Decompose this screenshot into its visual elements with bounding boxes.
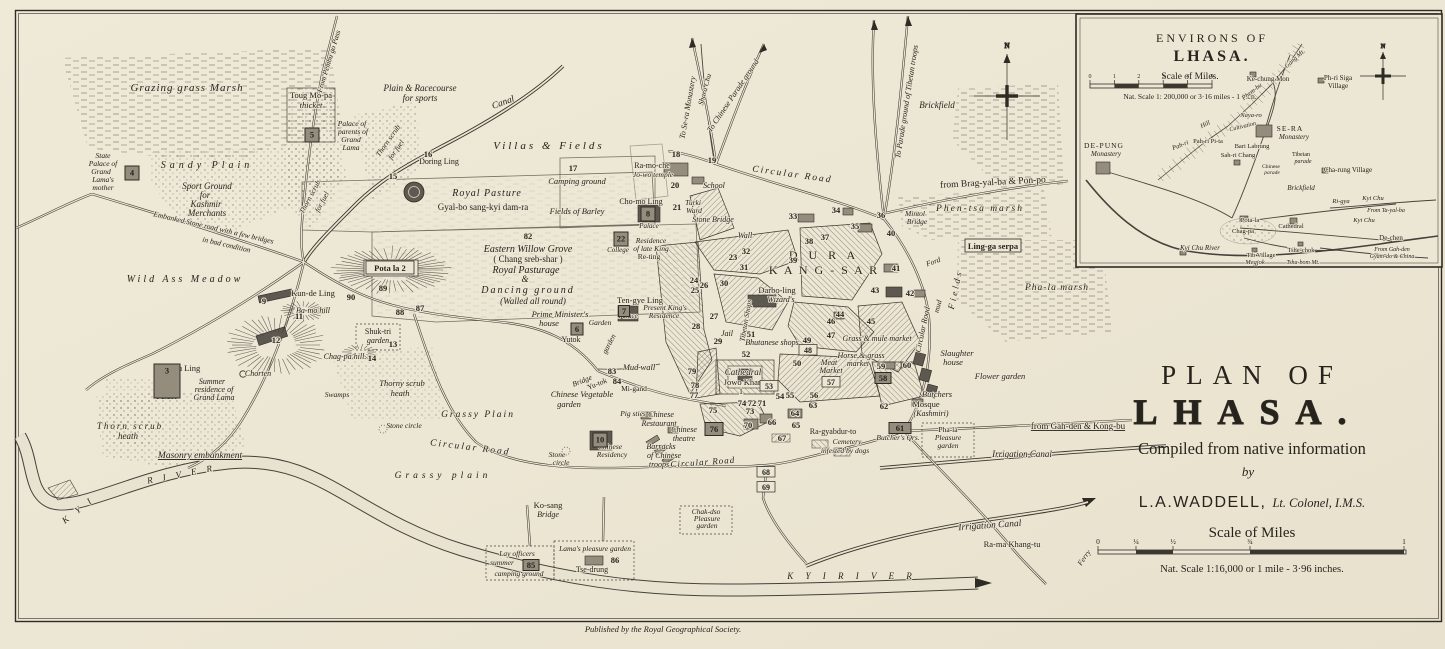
inset-label: Sah-ri Chang: [1221, 152, 1256, 159]
site-number: 27: [710, 311, 719, 321]
site-number: 55: [786, 390, 795, 400]
inset-label: Tib Village: [1246, 252, 1275, 259]
inset-title-2: LHASA.: [1173, 48, 1250, 65]
inset-label: From Ta-yal-ba: [1366, 208, 1405, 214]
map-label: Chag-pa hill.: [324, 352, 367, 361]
map-label: Wizard's: [767, 295, 794, 304]
map-label: Villas & Fields: [493, 140, 604, 152]
marker-number: 5: [310, 130, 314, 140]
site-number: 13: [389, 339, 398, 349]
map-label: Grass & mule market: [842, 334, 912, 343]
map-title-line2: LHASA.: [1133, 392, 1362, 432]
map-label: Chinese: [671, 425, 697, 434]
inset-label: From Gah-den: [1373, 247, 1410, 253]
map-label: Phen-tsa marsh: [935, 204, 1024, 214]
map-label: troops: [649, 460, 669, 469]
scale-tick-label: ½: [1170, 537, 1176, 546]
scale-tick-label: 3: [1162, 74, 1165, 80]
site-number: 14: [368, 353, 377, 363]
site-number: 15: [389, 171, 398, 181]
boxed-label: Ling-ga serpa: [968, 241, 1019, 251]
site-number: 17: [569, 163, 578, 173]
map-label: Thorny scrub: [379, 378, 425, 388]
map-label: Ra-gyabdur-to: [810, 427, 857, 436]
map-label: Flower garden: [974, 371, 1025, 381]
scale-tick-label: 5: [1211, 74, 1214, 80]
site-number: 32: [742, 246, 751, 256]
map-label: Brickfield: [919, 100, 955, 110]
map-label: house: [539, 318, 559, 328]
marker-number: 22: [617, 234, 626, 244]
site-number: 69: [762, 483, 770, 492]
marker-number: 3: [165, 366, 169, 376]
map-label: Ward: [686, 206, 702, 215]
map-label: garden: [697, 521, 718, 530]
site-number: 47: [827, 330, 836, 340]
site-number: 57: [827, 378, 835, 387]
site-number: 53: [765, 382, 773, 391]
inset-label: Village: [1328, 82, 1348, 90]
map-label: Swamps: [325, 390, 350, 399]
map-label: 1: [739, 387, 743, 396]
map-label: Jail: [721, 329, 734, 338]
scale-tick-label: ¼: [1133, 537, 1139, 546]
map-label: Chinese Vegetable: [551, 389, 614, 399]
se-ra-square: [1256, 125, 1272, 137]
north-label: N: [1004, 42, 1009, 50]
site-number: 74: [738, 398, 747, 408]
inset-label: Pota-la: [1241, 217, 1260, 224]
map-label: Chinese: [648, 410, 674, 419]
map-label: Cathedral: [725, 367, 762, 377]
map-label: Camping ground: [548, 176, 606, 186]
map-label: Royal Pasture: [451, 188, 522, 199]
site-number: 11: [295, 311, 303, 321]
site-number: 54: [776, 391, 785, 401]
scale-note: Nat. Scale 1:16,000 or 1 mile - 3·96 inc…: [1160, 564, 1343, 575]
map-label: School: [703, 181, 726, 190]
map-label: (Kashmiri): [913, 409, 948, 418]
map-label: Lama's pleasure garden: [558, 544, 631, 553]
site-number: 42: [906, 288, 915, 298]
map-label: Grazing grass Marsh: [130, 82, 243, 94]
site-number: 29: [714, 336, 723, 346]
site-number: 77: [690, 390, 699, 400]
map-label: from Gah-den & Kong-bu: [1031, 421, 1126, 431]
inset-label: parade: [1294, 159, 1312, 165]
site-number: 73: [746, 406, 755, 416]
site-number: 75: [709, 405, 718, 415]
site-number: 78: [691, 380, 700, 390]
inset-map: N ENVIRONS OF LHASA. Scale of Miles. 012…: [1076, 14, 1442, 267]
map-label: Butcher's Qrs.: [876, 433, 919, 442]
map-label: Cemetery: [833, 437, 862, 446]
map-label: infested by dogs: [821, 446, 869, 455]
map-label: heath: [391, 388, 410, 398]
map-label: Plain & Racecourse: [383, 83, 457, 93]
site-number: 49: [803, 335, 812, 345]
map-author: L.A.WADDELL,Lt. Colonel, I.M.S.: [1139, 494, 1365, 511]
map-label: K A N G - S A R: [769, 263, 879, 277]
inset-north-label: N: [1381, 44, 1386, 50]
map-label: Pha-la marsh: [1024, 283, 1089, 293]
map-label: Dancing ground: [480, 285, 574, 296]
map-label: garden: [367, 336, 389, 345]
map-label: ( Chang sreb-shar ): [493, 254, 562, 264]
site-number: 34: [832, 205, 841, 215]
site-number: 40: [887, 228, 896, 238]
inset-label: Ri-gya: [1331, 198, 1349, 205]
scale-tick-label: 0: [1096, 537, 1100, 546]
site-number: 45: [867, 316, 876, 326]
marker-number: 58: [879, 373, 888, 383]
site-number: 20: [671, 180, 680, 190]
map-label: Mi-gand: [621, 384, 647, 393]
inset-label: Bari Labrung: [1235, 143, 1271, 150]
inset-label: Monastery: [1090, 150, 1122, 158]
map-label: Grassy plain: [395, 471, 492, 481]
map-label: Merchants: [187, 208, 227, 218]
site-number: 30: [720, 278, 729, 288]
inset-scale-note: Nat. Scale 1: 200,000 or 3·16 miles - 1 …: [1123, 92, 1256, 101]
map-label: Butchers: [922, 389, 953, 399]
map-label: Lama: [341, 143, 359, 152]
site-number: 52: [742, 349, 751, 359]
site-number: 25: [691, 285, 700, 295]
marker-number: 10: [596, 435, 605, 445]
map-label: mother: [92, 183, 113, 192]
site-number: 60: [903, 360, 912, 370]
map-label: Stone circle: [386, 421, 422, 430]
inset-label: De-chen: [1379, 234, 1403, 242]
marker-number: 85: [527, 560, 536, 570]
map-label: Stone Bridge: [692, 215, 734, 224]
site-number: 67: [778, 433, 787, 443]
marker-number: 6: [575, 324, 579, 334]
scale-tick-label: 1: [1113, 74, 1116, 80]
site-number: 26: [700, 280, 709, 290]
inset-label: SE-RA: [1277, 124, 1304, 133]
inset-label: Pah-ri Pi-ta: [1193, 138, 1223, 145]
map-label: Masonry embankment: [157, 451, 243, 461]
site-number: 50: [793, 358, 802, 368]
scale-tick-label: 2: [1137, 74, 1140, 80]
inset-label: Kyi Chu: [1352, 217, 1375, 224]
inset-label: Kyi Chu: [1361, 195, 1384, 202]
map-label: Palace: [638, 222, 658, 230]
site-number: 82: [524, 231, 533, 241]
de-pung-square: [1096, 162, 1110, 174]
map-subtitle: Compiled from native information: [1138, 439, 1366, 458]
map-label: Bhutanese shops: [745, 338, 799, 347]
scale-tick-label: 4: [1186, 74, 1189, 80]
site-number: 46: [827, 316, 836, 326]
pond-15: [404, 182, 424, 202]
map-label: Market: [818, 366, 843, 375]
site-number: 19: [708, 155, 717, 165]
marker-number: 8: [646, 209, 650, 219]
map-label: Kun-de Ling: [291, 288, 335, 298]
site-number: 35: [851, 221, 860, 231]
publisher-imprint: Published by the Royal Geographical Soci…: [584, 624, 741, 634]
site-number: 16: [424, 149, 433, 159]
site-number: 71: [758, 398, 767, 408]
site-number: 86: [611, 555, 620, 565]
map-label: Jo-wo temple: [633, 170, 674, 179]
map-label: (Walled all round): [500, 296, 566, 306]
site-number: 9: [262, 296, 266, 306]
map-label: Grand Lama: [193, 393, 234, 402]
map-label: Tse-drung: [576, 565, 608, 574]
map-label: Fields of Barley: [549, 206, 605, 216]
map-label: Gyal-bo sang-kyi dam-ra: [438, 202, 528, 212]
inset-label: Naya-ro: [1239, 112, 1262, 119]
site-number: 70: [744, 420, 753, 430]
site-number: 59: [877, 361, 886, 371]
inset-label: Kyi Chu River: [1179, 244, 1220, 252]
site-number: 84: [613, 376, 622, 386]
inset-label: Ph-ri Siga: [1324, 74, 1353, 82]
map-label: Lay officers: [498, 549, 535, 558]
site-number: 89: [379, 283, 388, 293]
map-label: Chorten: [245, 369, 271, 378]
inset-label: Monastery: [1278, 133, 1310, 141]
map-label: College: [607, 246, 629, 254]
site-number: 44: [836, 309, 845, 319]
site-number: 66: [768, 417, 777, 427]
map-label: Ra-mo-che: [634, 161, 670, 170]
lhasa-plan-map: N ENVIRONS OF LHASA. Scale of Miles. 012…: [0, 0, 1445, 649]
map-label: circle: [553, 458, 570, 467]
map-label: Thorn scrub: [97, 421, 163, 431]
map-label: Bridge: [907, 217, 928, 226]
map-label: market: [847, 359, 870, 368]
boxed-label: Pota la 2: [374, 263, 406, 273]
map-label: Barracks: [646, 442, 675, 451]
site-number: 38: [805, 236, 814, 246]
site-number: 51: [747, 329, 756, 339]
map-label: thicket: [300, 100, 323, 110]
site-number: 87: [416, 303, 425, 313]
map-label: Mosque: [912, 399, 940, 409]
site-number: 63: [809, 400, 818, 410]
site-number: 23: [729, 252, 738, 262]
site-number: 68: [762, 468, 770, 477]
site-number: 62: [880, 401, 889, 411]
site-number: 31: [740, 262, 749, 272]
inset-label: Megjok: [1244, 259, 1265, 266]
map-label: heath: [118, 431, 138, 441]
inset-label: Chag-pa: [1232, 228, 1254, 235]
site-number: 48: [804, 346, 812, 355]
map-label: Ra-ma Khang-tu: [984, 539, 1042, 549]
map-label: Yutok: [561, 335, 580, 344]
site-number: 43: [871, 285, 880, 295]
site-number: 24: [690, 275, 699, 285]
map-label: summer: [490, 558, 514, 567]
map-label: Pig sties: [619, 409, 646, 418]
map-label: Wild Ass Meadow: [127, 274, 243, 285]
map-label: &: [521, 274, 528, 284]
inset-title-1: ENVIRONS OF: [1156, 31, 1268, 45]
site-number: 21: [673, 202, 682, 212]
inset-label: Ke-chung Mon: [1247, 75, 1290, 83]
scale-tick-label: ¾: [1247, 537, 1253, 546]
site-number: 83: [608, 366, 617, 376]
site-number: 33: [789, 211, 798, 221]
map-label: Sandy Plain: [161, 160, 254, 171]
site-number: 88: [396, 307, 405, 317]
map-label: garden: [557, 399, 581, 409]
scale-tick-label: 1: [1402, 537, 1406, 546]
site-number: 18: [672, 149, 681, 159]
site-number: 64: [791, 408, 800, 418]
site-number: 90: [347, 292, 356, 302]
site-number: 36: [877, 210, 886, 220]
site-number: 56: [810, 390, 819, 400]
site-number: 39: [789, 255, 798, 265]
map-label: K Y I R I V E R: [786, 571, 917, 581]
map-label: Grassy Plain: [441, 410, 515, 420]
site-number: 28: [692, 321, 701, 331]
map-label: Residency: [596, 450, 628, 459]
map-label: Toug Mo-pa: [290, 90, 332, 100]
map-label: Irrigation Canal: [991, 449, 1052, 459]
map-label: theatre: [673, 434, 696, 443]
map-label: house: [943, 357, 963, 367]
map-label: Shuk-tri: [365, 327, 392, 336]
site-number: 41: [892, 263, 901, 273]
map-label: Wall: [738, 231, 753, 240]
map-title-line1: PLAN OF: [1161, 360, 1343, 390]
inset-label: Brickfield: [1287, 184, 1315, 192]
map-label: Re-ting: [638, 252, 661, 261]
inset-label: Gyam-do & China: [1370, 254, 1415, 260]
map-label: Darbo-ling: [758, 285, 796, 295]
marker-number: 76: [710, 424, 719, 434]
map-by: by: [1242, 464, 1255, 479]
map-label: garden: [938, 441, 959, 450]
map-label: Cho-mo Ling: [619, 197, 662, 206]
site-number: 12: [272, 335, 281, 345]
site-number: 65: [792, 420, 801, 430]
map-label: D U R A: [789, 248, 859, 262]
inset-label: Tibetan: [1292, 152, 1310, 158]
inset-label: parade: [1263, 170, 1280, 176]
map-label: Garden: [589, 318, 612, 327]
map-label: Mud wall: [622, 362, 656, 372]
site-number: 37: [821, 232, 830, 242]
map-canvas: N ENVIRONS OF LHASA. Scale of Miles. 012…: [0, 0, 1445, 649]
inset-label: Tshe-chok: [1288, 247, 1316, 254]
map-label: for sports: [403, 93, 438, 103]
map-label: Ko-sang: [534, 500, 564, 510]
marker-number: 61: [896, 423, 905, 433]
site-number: 79: [688, 366, 697, 376]
inset-label: Cathedral: [1278, 223, 1303, 230]
scale-tick-label: 0: [1089, 74, 1092, 80]
inset-label: Cha-rung Village: [1324, 166, 1372, 174]
inset-label: Tsha-bom Mt.: [1286, 260, 1319, 266]
inset-label: DE-PUNG: [1084, 141, 1124, 150]
map-label: Bridge: [537, 510, 559, 519]
map-label: Residence: [648, 311, 680, 320]
